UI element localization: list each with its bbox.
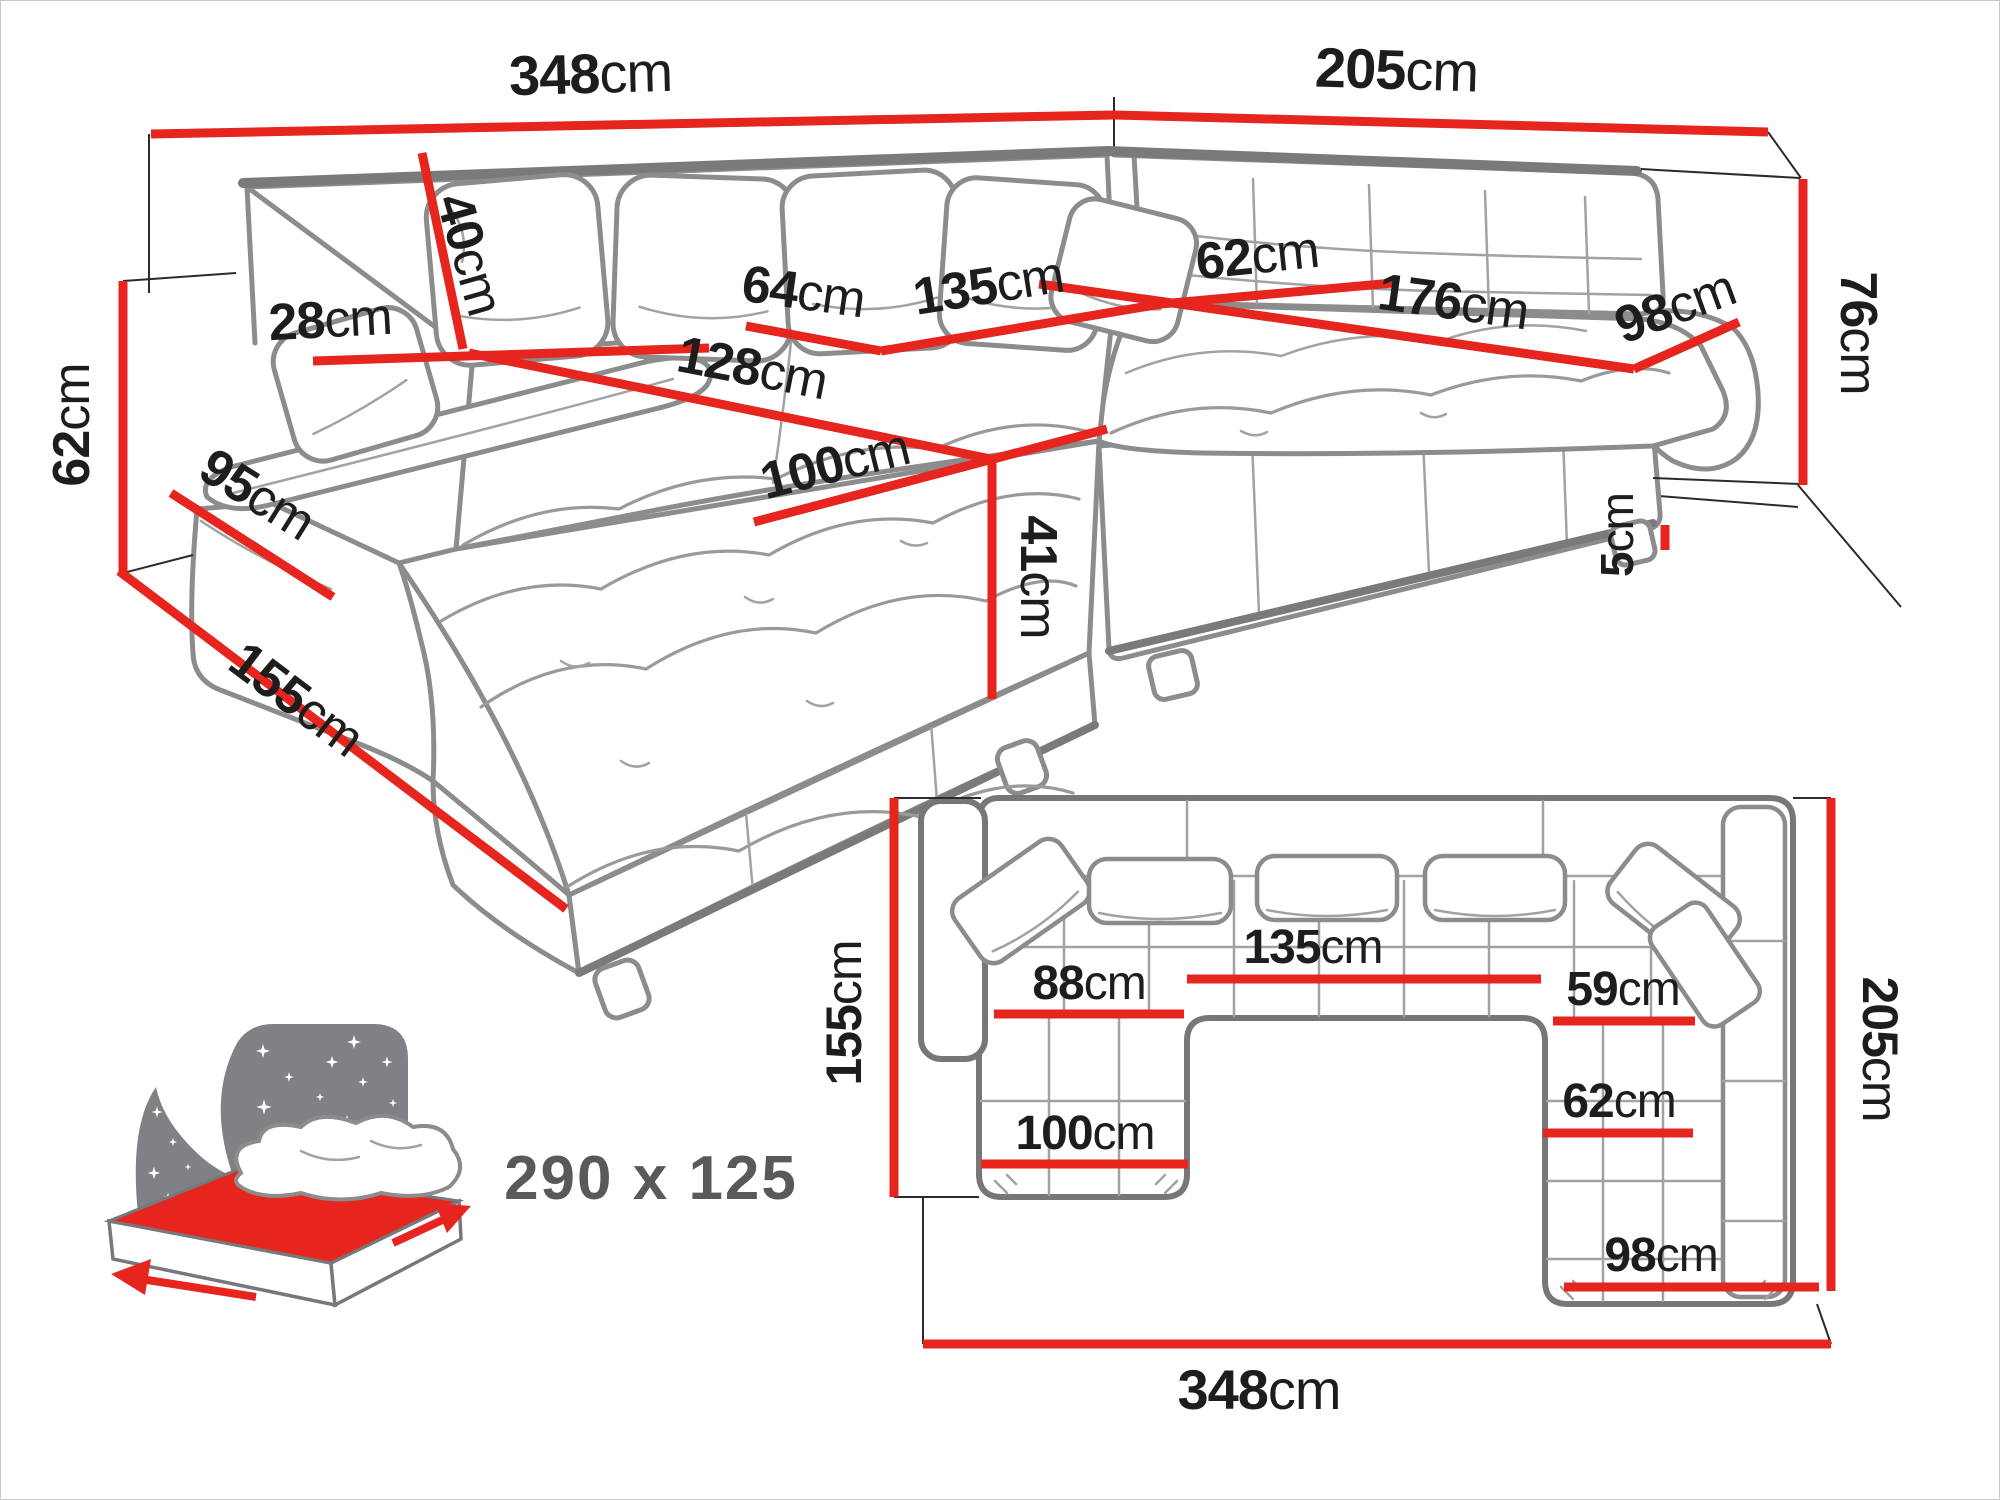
sleeping-area-size: 290 x 125 [504, 1144, 798, 1213]
dim-arm-top-width: 28cm [267, 288, 393, 352]
dim-total-width: 348cm [508, 40, 673, 107]
dim-arm-height: 62cm [43, 363, 101, 486]
sofa-dimension-diagram: 348cm 205cm 62cm 95cm 155cm 28cm 40cm 64… [0, 0, 2000, 1500]
dim-tv-left-chaise: 100cm [1015, 1107, 1154, 1160]
dim-tv-right-chaise: 62cm [1562, 1075, 1675, 1128]
dim-tv-right-seat: 59cm [1566, 963, 1679, 1016]
sleep-function-icon: 290 x 125 [109, 1024, 798, 1305]
dim-total-height: 76cm [1829, 271, 1887, 394]
dim-tv-total-width: 348cm [1177, 1358, 1340, 1421]
dim-tv-left-seat: 88cm [1032, 957, 1145, 1010]
dim-tv-middle-seat: 135cm [1243, 921, 1382, 974]
dim-leg-height: 5cm [1591, 493, 1643, 577]
dim-tv-left-depth: 155cm [816, 940, 872, 1085]
diagram-svg: 348cm 205cm 62cm 95cm 155cm 28cm 40cm 64… [1, 1, 2000, 1500]
dim-seat-height: 41cm [1009, 515, 1067, 638]
dim-right-depth: 205cm [1314, 35, 1479, 103]
dim-tv-right-depth: 205cm [1852, 976, 1908, 1121]
duvet [236, 1116, 460, 1200]
dim-tv-right-end: 98cm [1604, 1229, 1717, 1282]
